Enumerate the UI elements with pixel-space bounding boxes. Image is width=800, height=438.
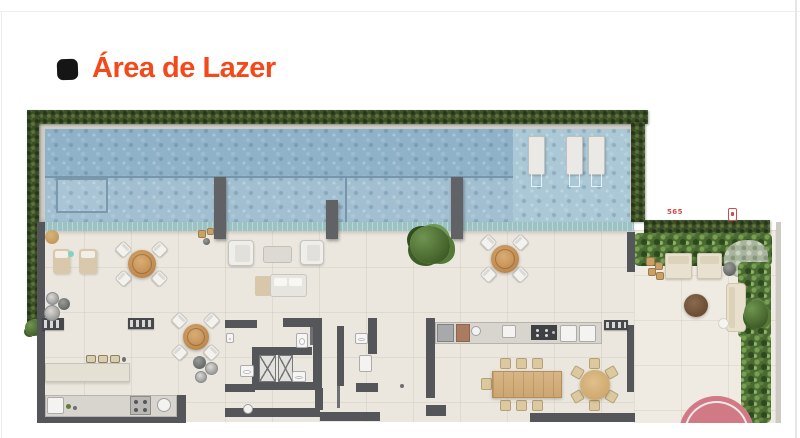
wall-wc-top-a xyxy=(225,320,257,328)
side-table-wood xyxy=(646,257,655,266)
wall-wc-mid xyxy=(337,326,344,386)
side-table-round xyxy=(684,294,708,317)
toilet xyxy=(292,371,306,382)
pool-infinity-edge xyxy=(42,222,634,231)
dining-table xyxy=(492,371,562,398)
in-pool-lounger xyxy=(528,136,545,175)
counter-sink xyxy=(471,326,481,336)
side-table-wood xyxy=(656,272,664,280)
garden-right-wall xyxy=(776,222,781,423)
chair-wood xyxy=(516,358,527,369)
round-dining-table xyxy=(580,370,610,400)
wall-wc-top-b xyxy=(283,318,313,327)
wall xyxy=(177,395,186,423)
round-rug xyxy=(679,396,754,423)
pot-dark xyxy=(723,262,736,276)
cooktop xyxy=(130,396,151,415)
side-table-wood xyxy=(198,230,206,238)
wall xyxy=(426,405,446,416)
door-leaf xyxy=(337,386,340,408)
bistro-table xyxy=(491,245,519,273)
wall xyxy=(252,382,322,390)
floor-plan: 565 xyxy=(0,0,800,438)
wall xyxy=(627,413,635,422)
garden-sofa xyxy=(726,283,746,332)
elevator-2 xyxy=(278,355,293,382)
wall xyxy=(225,384,255,392)
wall xyxy=(627,325,634,392)
in-pool-lounger xyxy=(588,136,605,175)
plant-blob xyxy=(744,300,768,328)
wall xyxy=(368,318,377,354)
oven xyxy=(437,324,454,342)
hedge-right xyxy=(631,122,645,222)
pot xyxy=(195,371,207,383)
hedge-top xyxy=(27,110,648,124)
bistro-table xyxy=(128,250,156,278)
lounger-garden xyxy=(697,253,722,279)
ball-white xyxy=(718,318,729,329)
washbasin xyxy=(359,355,372,372)
pool-lap-section xyxy=(45,177,513,222)
sink-square xyxy=(579,325,596,342)
daybed-base xyxy=(255,276,271,296)
chair-wood xyxy=(589,400,600,411)
cutting-board xyxy=(456,324,470,342)
coffee-table xyxy=(263,246,292,263)
elevator-1 xyxy=(259,355,276,382)
kitchen-sink xyxy=(47,397,64,414)
pot xyxy=(44,305,60,321)
floor-drain xyxy=(243,404,253,414)
pillar xyxy=(326,200,338,239)
wall xyxy=(627,232,635,272)
wall xyxy=(356,383,378,392)
bench-counter xyxy=(45,363,130,382)
stool xyxy=(86,355,96,363)
barbecue-grill xyxy=(128,318,154,329)
hedge-terrace xyxy=(644,220,770,233)
wall xyxy=(315,388,323,410)
dot-green xyxy=(66,404,71,409)
pot xyxy=(205,362,218,375)
chair-wood xyxy=(500,358,511,369)
armchair xyxy=(228,240,254,266)
lounger-garden xyxy=(665,253,692,279)
leisure-area-page: Área de Lazer 565 xyxy=(0,0,800,438)
pouf xyxy=(45,230,59,244)
counter-sink xyxy=(502,325,516,338)
pillar xyxy=(214,177,226,239)
chair-wood xyxy=(532,400,543,411)
wall xyxy=(320,412,380,421)
side-table-wood xyxy=(655,262,663,270)
pillar xyxy=(451,177,463,239)
chair-wood xyxy=(481,378,492,390)
side-table-wood xyxy=(207,228,214,235)
toilet xyxy=(355,333,368,344)
kitchen-sink xyxy=(157,398,171,412)
dot-dark xyxy=(73,406,77,410)
stool xyxy=(110,355,120,363)
dimension-label: 565 xyxy=(662,207,688,217)
dot-dark xyxy=(122,357,126,362)
pot-dark xyxy=(58,298,70,310)
pool-steps xyxy=(56,178,108,213)
pool-line-v xyxy=(345,177,347,222)
pot-dark xyxy=(203,238,210,245)
door-leaf xyxy=(310,327,313,345)
wall-bottom-lobby xyxy=(225,408,320,417)
armchair xyxy=(300,240,324,265)
daybed xyxy=(270,274,307,297)
chair-wood xyxy=(532,358,543,369)
sun-mat xyxy=(79,249,97,274)
wall xyxy=(313,318,322,390)
in-pool-lounger xyxy=(566,136,583,175)
wall-bottom-right xyxy=(530,413,634,422)
chair-wood xyxy=(500,400,511,411)
pool-line-h xyxy=(45,176,513,178)
dot-teal xyxy=(68,251,74,257)
sink-square xyxy=(560,325,577,342)
washbasin xyxy=(226,333,234,343)
barbecue-grill xyxy=(604,320,628,330)
chair-wood xyxy=(589,358,600,369)
potted-plant xyxy=(410,226,450,264)
bistro-table xyxy=(183,324,209,350)
cooktop xyxy=(531,325,557,340)
wall xyxy=(252,347,312,355)
stool xyxy=(98,355,108,363)
chair-wood xyxy=(516,400,527,411)
toilet xyxy=(240,365,254,377)
red-marker-icon xyxy=(728,208,737,221)
wall-kitchen xyxy=(426,318,435,398)
side-table-wood xyxy=(648,268,656,276)
door-pivot xyxy=(400,384,404,388)
toilet xyxy=(296,333,308,348)
